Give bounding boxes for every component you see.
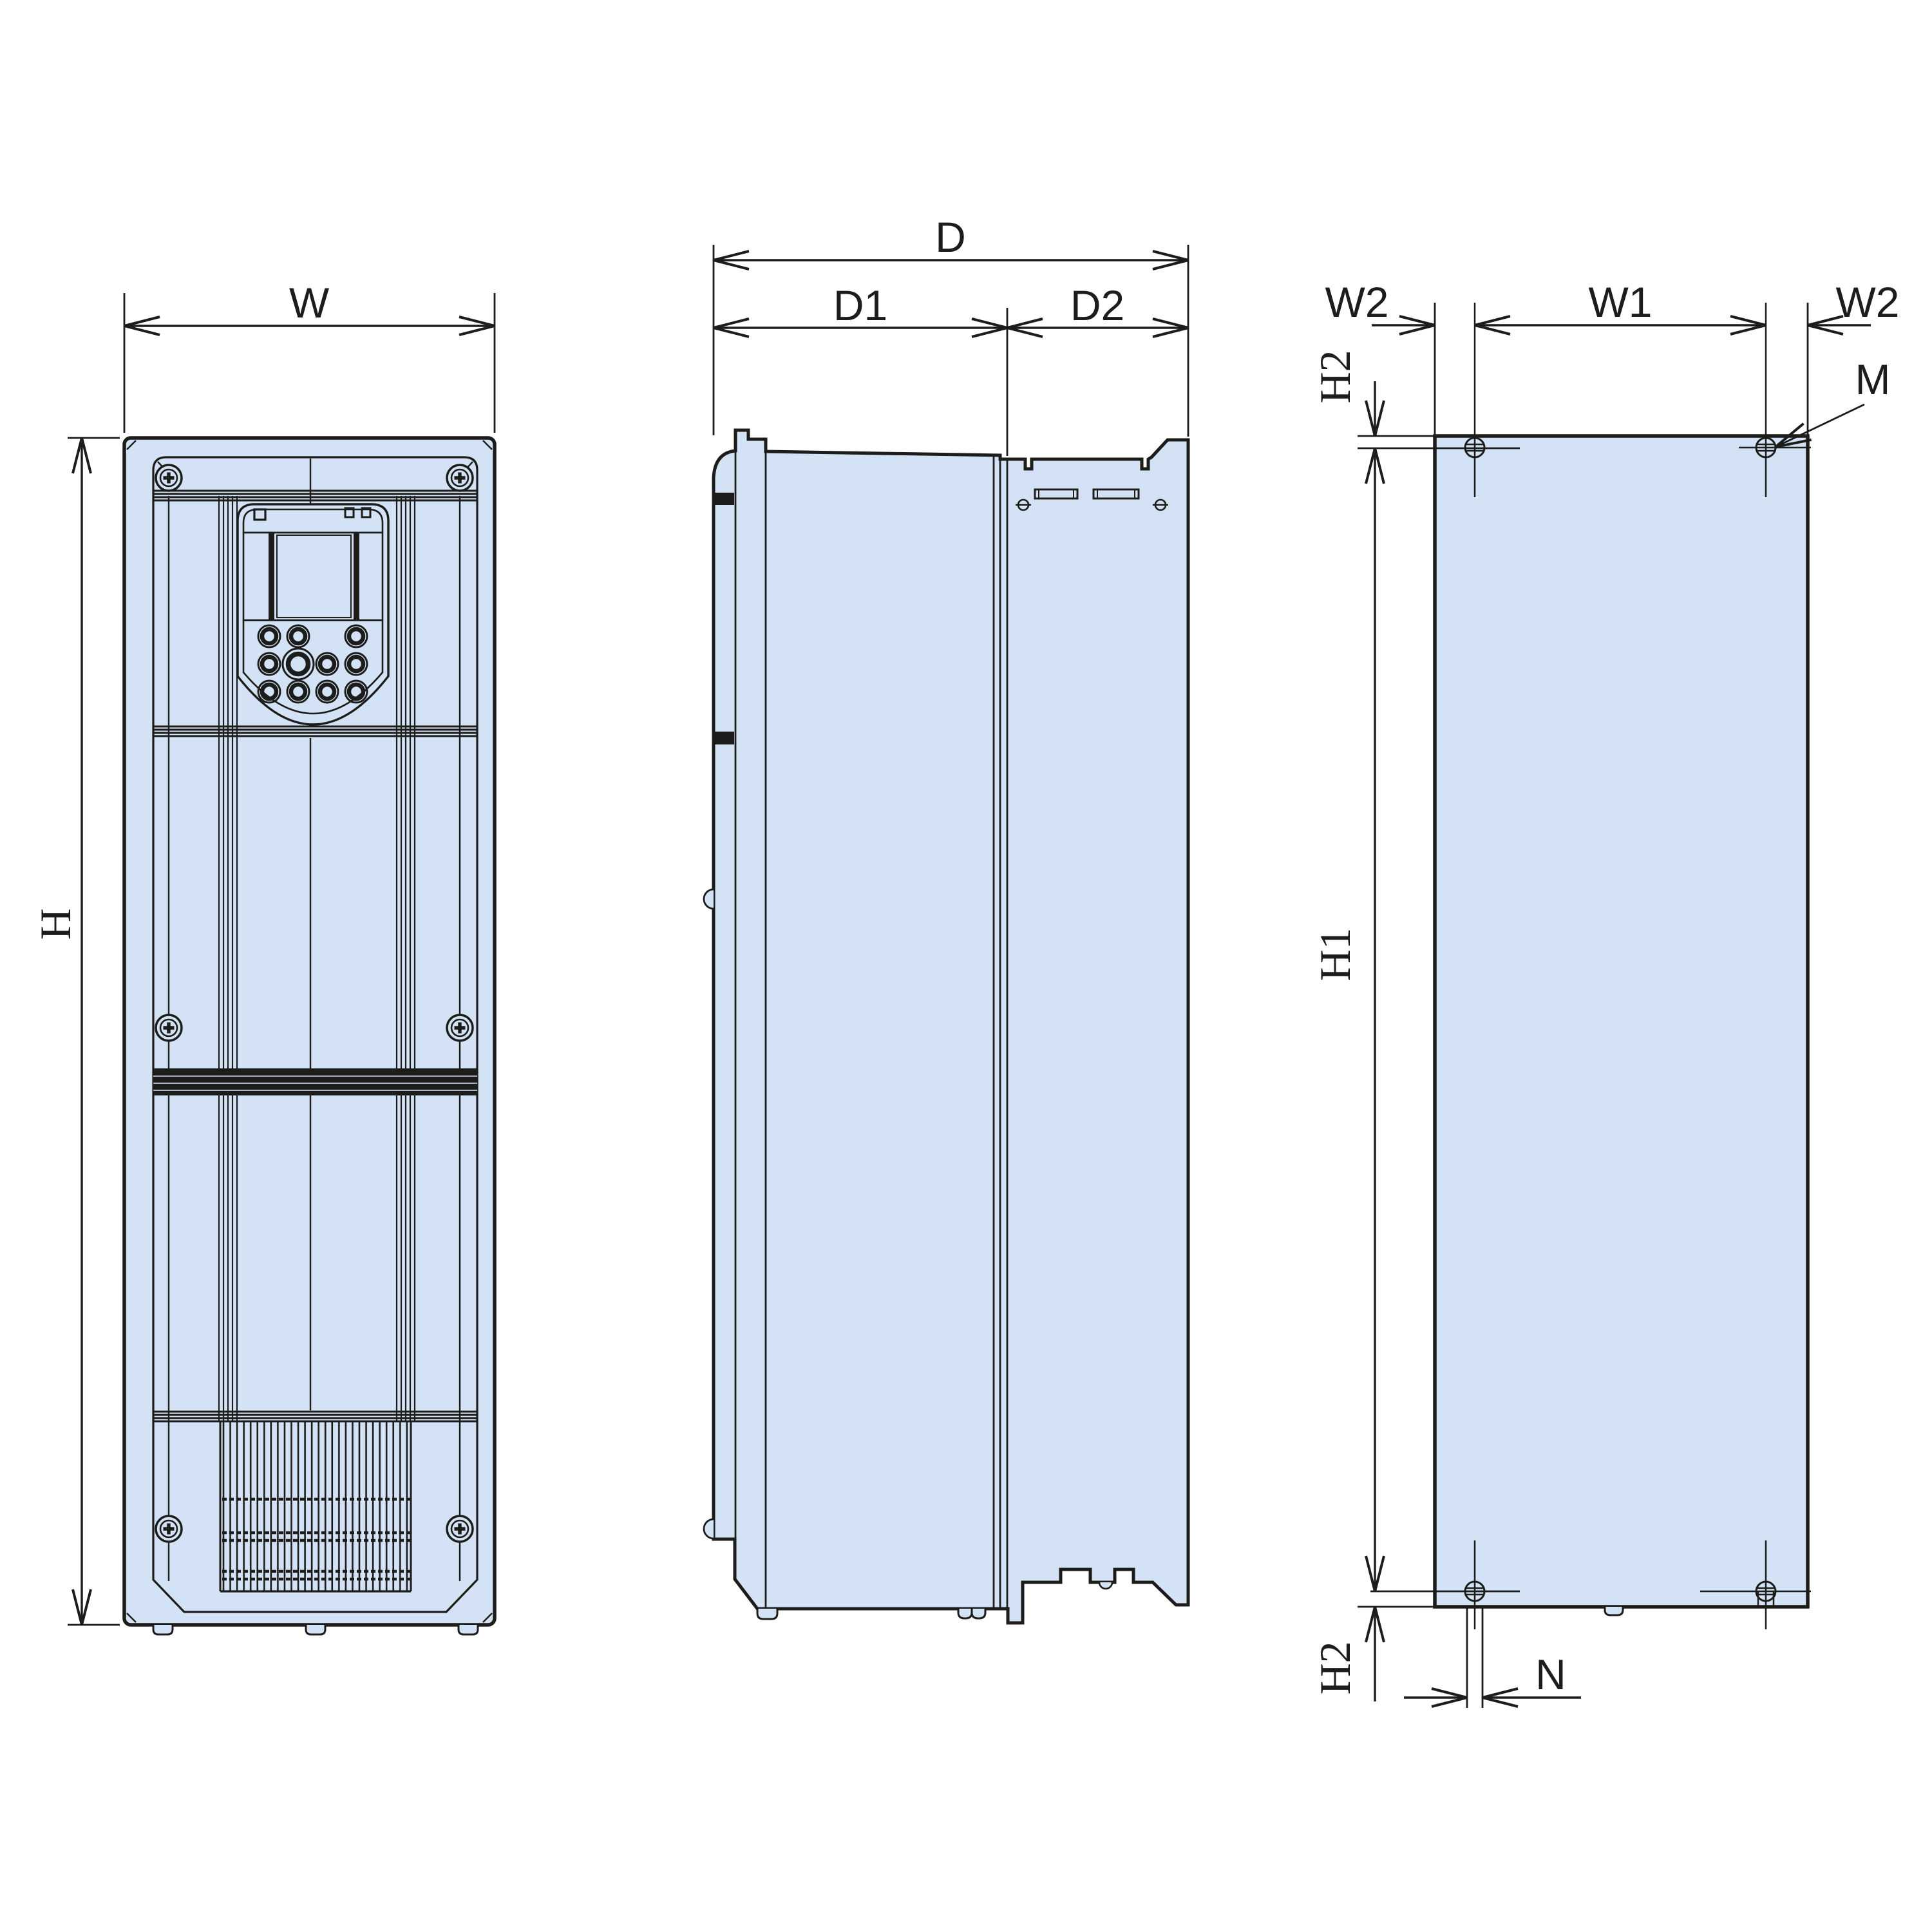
- lcd-display: [269, 533, 359, 620]
- dim-label-d: D: [935, 213, 966, 261]
- dim-label-w1: W1: [1589, 278, 1653, 326]
- bottom-bump: [1099, 1582, 1112, 1589]
- hinge-bump-bottom: [704, 1519, 714, 1539]
- dimension-h2-top: H2: [1311, 350, 1520, 448]
- callout-m: M: [1772, 355, 1891, 455]
- vent-grille: [220, 1421, 411, 1591]
- dimension-drawing: W H: [0, 0, 1932, 1932]
- dim-label-n: N: [1535, 1651, 1566, 1698]
- screw-top-right: [447, 465, 473, 491]
- dim-label-w2-left: W2: [1325, 278, 1389, 326]
- dimension-h: H: [31, 438, 120, 1625]
- back-view: [1435, 303, 1811, 1629]
- cover-clip-mid: [715, 732, 734, 744]
- screw-mid-left: [156, 1015, 182, 1041]
- dim-label-w2-right: W2: [1836, 278, 1900, 326]
- m-leader-line: [1776, 404, 1864, 447]
- keypad: [238, 504, 388, 724]
- front-view: [124, 438, 495, 1634]
- seam-band-thick: [153, 1068, 477, 1095]
- screw-mid-right: [447, 1015, 473, 1041]
- dim-label-h2-top: H2: [1311, 350, 1359, 403]
- dim-label-d2: D2: [1070, 281, 1124, 329]
- dim-label-m: M: [1855, 355, 1891, 403]
- hinge-bump-mid: [704, 889, 714, 909]
- drawing-page: W H: [0, 0, 1932, 1932]
- cover-clip-top: [715, 493, 734, 505]
- back-foot: [1605, 1607, 1623, 1615]
- screw-bottom-left: [156, 1516, 182, 1542]
- dim-label-w: W: [289, 279, 330, 327]
- dimension-w: W: [124, 279, 495, 433]
- back-plate: [1435, 436, 1808, 1607]
- dim-label-h2-bottom: H2: [1311, 1641, 1359, 1694]
- side-view: [704, 430, 1188, 1623]
- dimension-w1: W1: [1475, 278, 1766, 334]
- screw-bottom-right: [447, 1516, 473, 1542]
- dimension-h1: H1: [1311, 448, 1384, 1591]
- dimension-d1: D1: [714, 281, 1007, 456]
- dimension-d2: D2: [1007, 281, 1188, 337]
- dimension-n: N: [1404, 1607, 1581, 1708]
- dim-label-d1: D1: [833, 281, 887, 329]
- screw-top-left: [156, 465, 182, 491]
- dim-label-h: H: [31, 908, 80, 940]
- dim-label-h1: H1: [1311, 927, 1359, 981]
- side-silhouette: [714, 430, 1188, 1623]
